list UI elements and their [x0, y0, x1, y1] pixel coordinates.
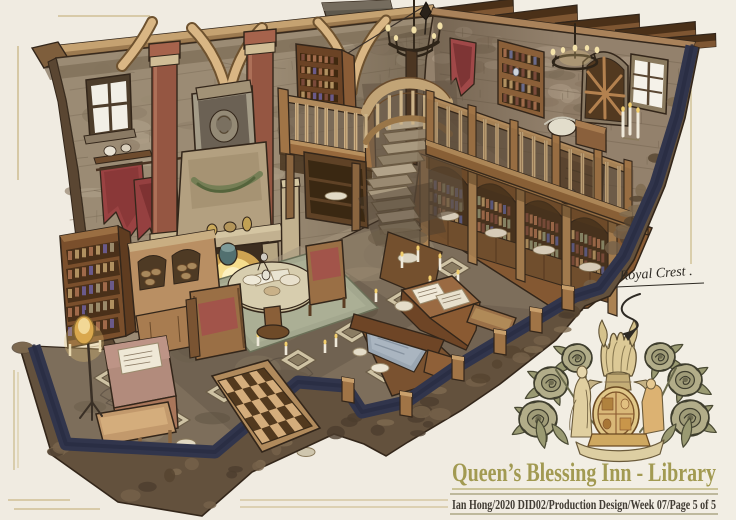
- svg-text:Ian Hong/2020 DID02/Production: Ian Hong/2020 DID02/Production Design/We…: [452, 497, 716, 512]
- svg-text:Queen’s Blessing Inn - Library: Queen’s Blessing Inn - Library: [452, 458, 716, 487]
